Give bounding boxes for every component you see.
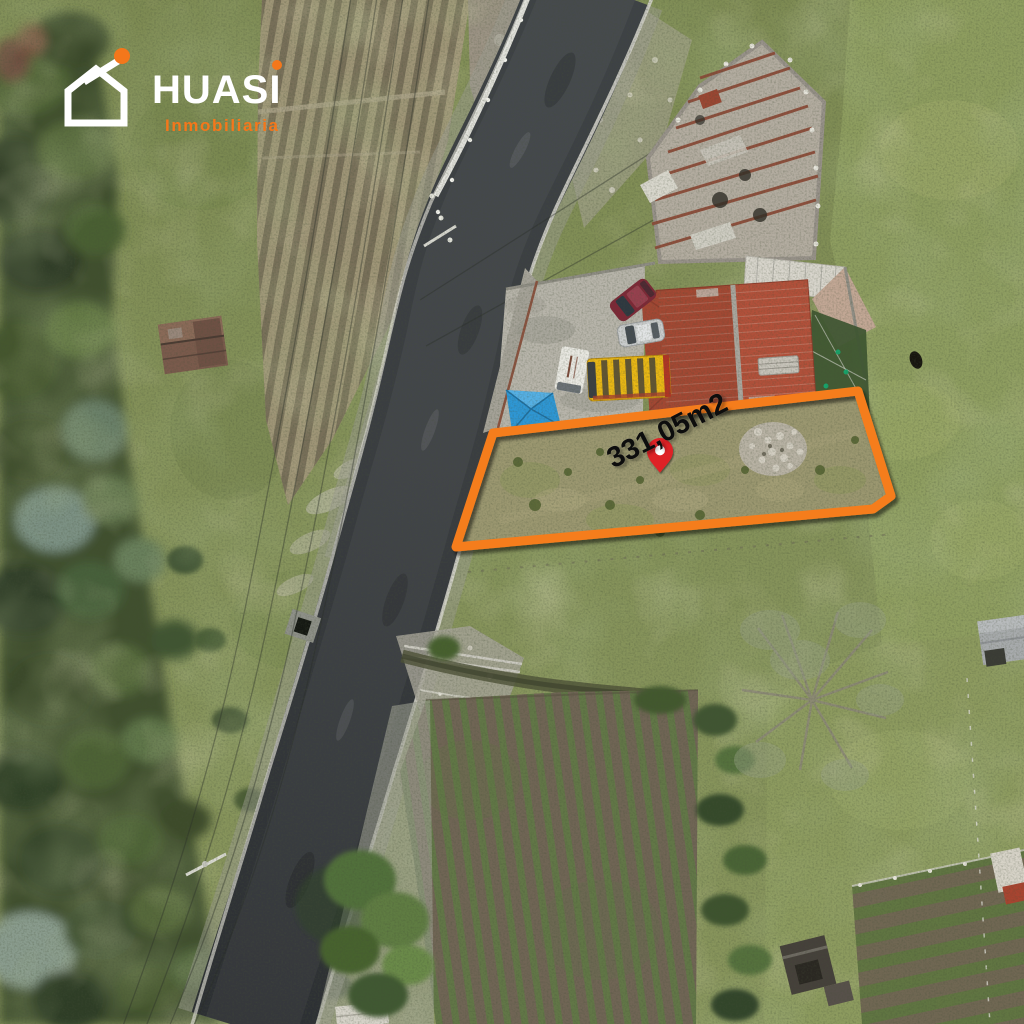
brand-logo: HUASI Inmobiliaria [56,46,281,134]
brand-dot-icon [114,48,130,64]
brand-name: HUASI [152,70,281,110]
listing-photo: HUASI Inmobiliaria 331,05m2 [0,0,1024,1024]
brand-text: HUASI Inmobiliaria [152,46,281,134]
house-icon [56,46,138,130]
aerial-photo [0,0,1024,1024]
brand-tagline: Inmobiliaria [165,117,281,134]
